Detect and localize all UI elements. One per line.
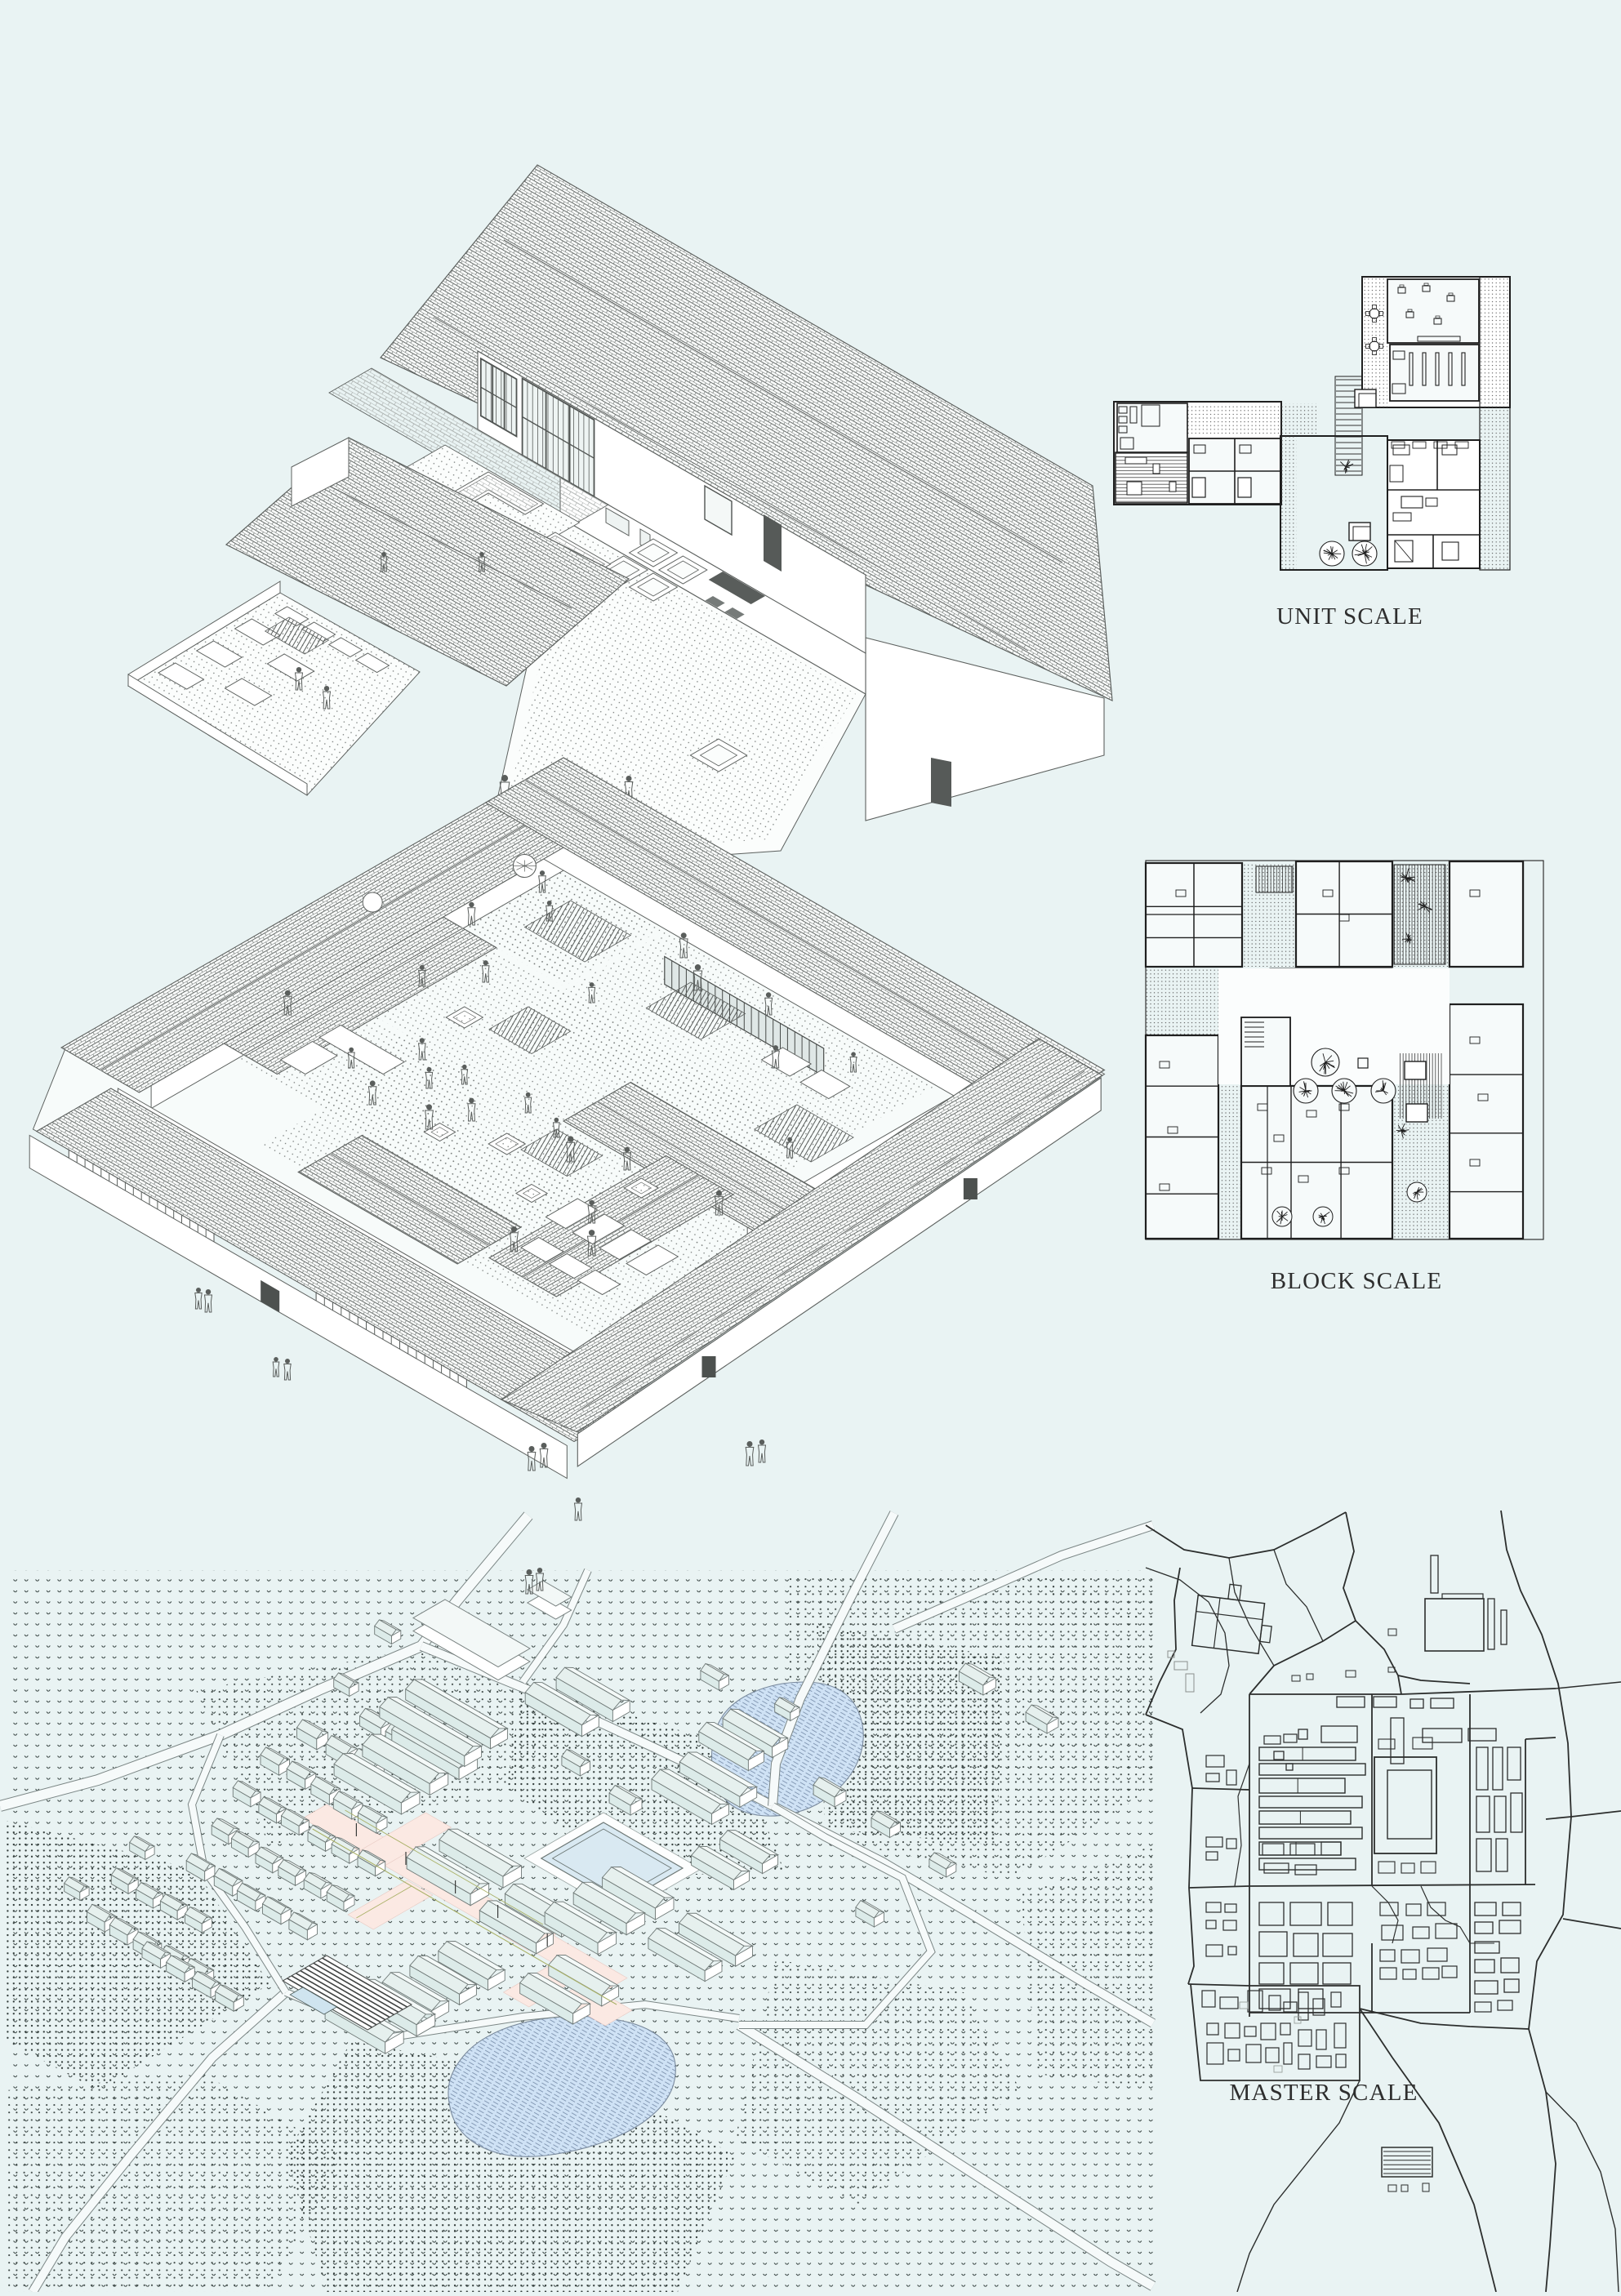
svg-text:BLOCK SCALE: BLOCK SCALE — [1271, 1268, 1443, 1294]
svg-text:MASTER SCALE: MASTER SCALE — [1229, 2080, 1418, 2106]
svg-text:UNIT SCALE: UNIT SCALE — [1276, 603, 1423, 630]
